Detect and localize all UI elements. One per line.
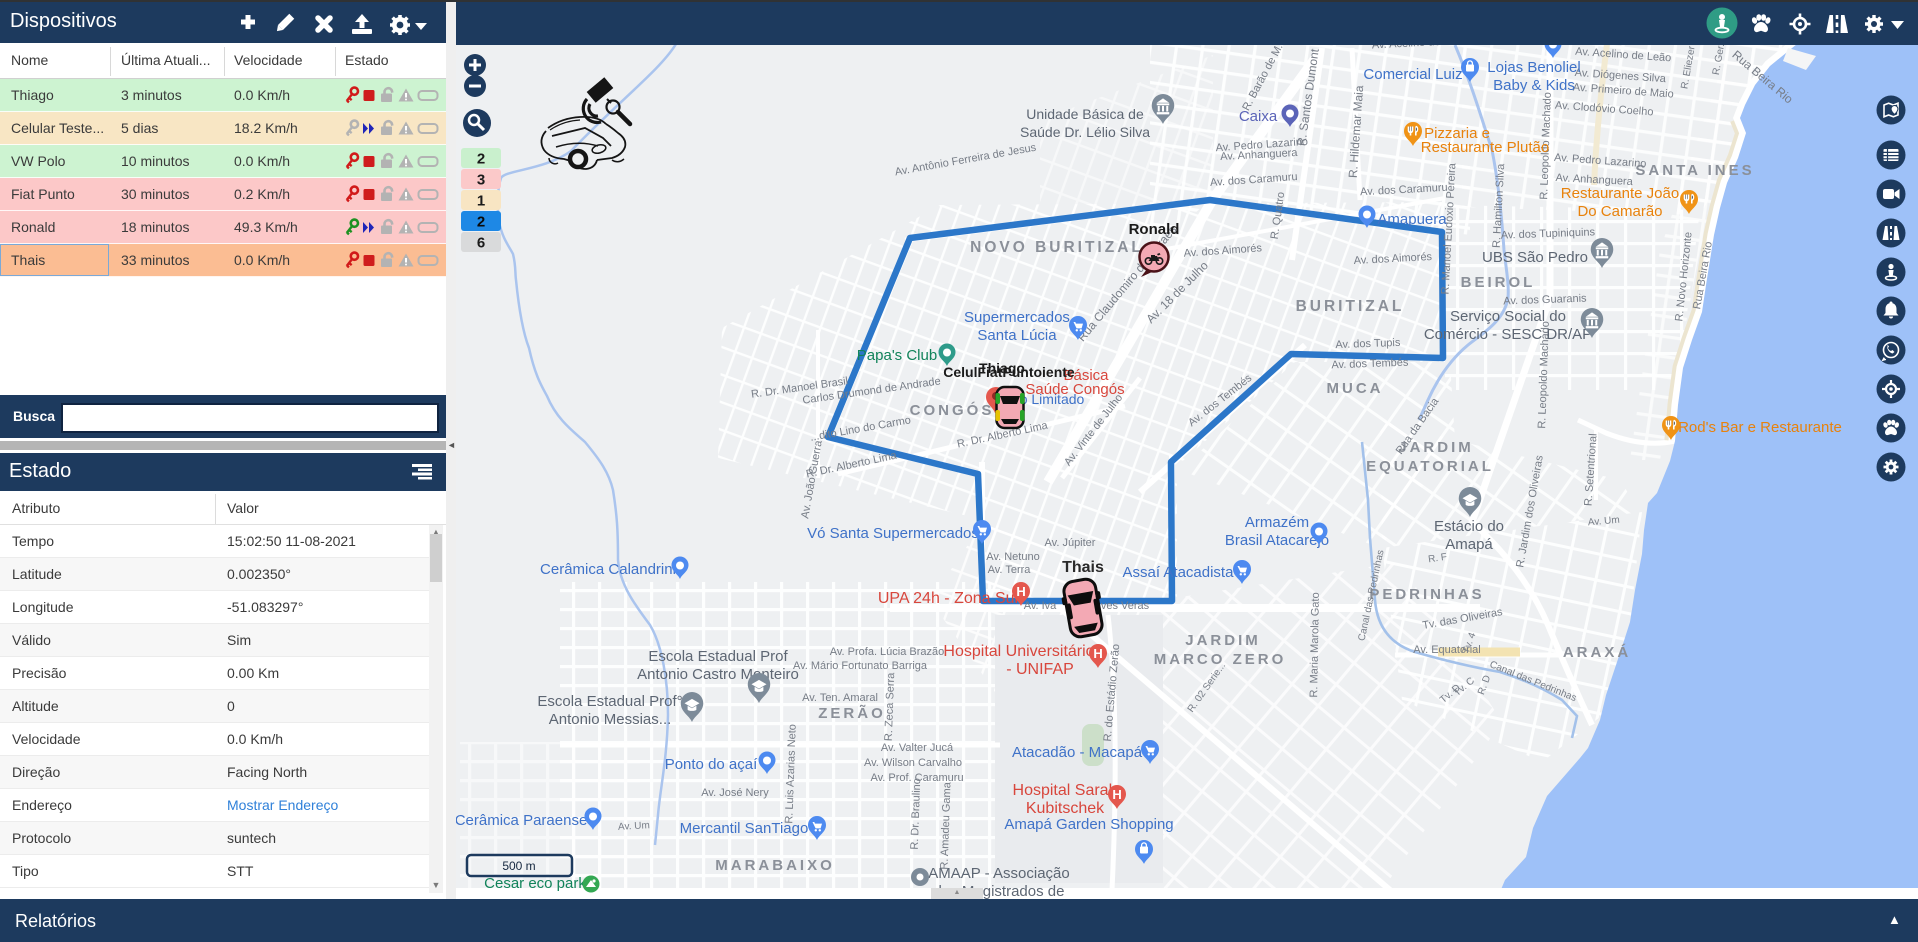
svg-text:Thais: Thais	[1062, 559, 1104, 576]
svg-text:6: 6	[477, 235, 485, 252]
svg-text:Supermercados: Supermercados	[964, 309, 1070, 326]
svg-text:Restaurante Plutão: Restaurante Plutão	[1421, 139, 1549, 156]
svg-text:Do Camarão: Do Camarão	[1577, 203, 1662, 220]
svg-text:Av. Equatorial: Av. Equatorial	[1413, 644, 1480, 656]
svg-text:Av. Júpiter: Av. Júpiter	[1045, 537, 1096, 549]
svg-text:CONGÓS: CONGÓS	[910, 401, 995, 419]
svg-text:Antonio Castro Monteiro: Antonio Castro Monteiro	[637, 666, 799, 683]
svg-text:Hospital Sarah: Hospital Sarah	[1013, 782, 1118, 799]
svg-text:Cesar eco park: Cesar eco park	[484, 875, 586, 892]
svg-text:2: 2	[477, 151, 485, 168]
svg-text:Amapuera: Amapuera	[1377, 211, 1447, 228]
svg-text:Amapá Garden Shopping: Amapá Garden Shopping	[1004, 816, 1173, 833]
svg-text:NOVO BURITIZAL: NOVO BURITIZAL	[970, 239, 1144, 256]
svg-text:Cerâmica Paraense: Cerâmica Paraense	[456, 812, 587, 829]
svg-text:Baby & Kids: Baby & Kids	[1493, 77, 1575, 94]
svg-text:Comércio - SESC DR/AP: Comércio - SESC DR/AP	[1424, 326, 1592, 343]
svg-text:UPA 24h - Zona Sul: UPA 24h - Zona Sul	[878, 590, 1018, 607]
svg-text:R. Zeca Serra: R. Zeca Serra	[883, 672, 897, 742]
svg-text:ARAXÁ: ARAXÁ	[1563, 644, 1631, 661]
svg-text:Papa's Club: Papa's Club	[857, 347, 937, 364]
svg-text:Escola Estadual Prof°: Escola Estadual Prof°	[537, 693, 682, 710]
svg-text:MUCA: MUCA	[1327, 380, 1384, 397]
svg-text:JARDIM: JARDIM	[1185, 632, 1261, 649]
svg-text:Santa Lúcia: Santa Lúcia	[977, 327, 1057, 344]
svg-text:Cerâmica Calandrini: Cerâmica Calandrini	[540, 561, 676, 578]
svg-text:Ronald: Ronald	[1129, 221, 1180, 238]
svg-text:Assaí Atacadista: Assaí Atacadista	[1123, 564, 1235, 581]
svg-text:Av. Um: Av. Um	[618, 820, 650, 833]
svg-text:Lojas Benoliel: Lojas Benoliel	[1487, 59, 1580, 76]
svg-text:SANTA INES: SANTA INES	[1635, 162, 1754, 179]
svg-text:Ponto do açaí: Ponto do açaí	[665, 756, 758, 773]
svg-text:Vó Santa Supermercados: Vó Santa Supermercados	[807, 525, 979, 542]
svg-text:Rod's Bar e Restaurante: Rod's Bar e Restaurante	[1678, 419, 1842, 436]
svg-text:Saúde Dr. Lélio Silva: Saúde Dr. Lélio Silva	[1020, 124, 1150, 140]
svg-text:Av. Iva: Av. Iva	[1024, 600, 1057, 612]
svg-text:ZERÃO: ZERÃO	[818, 704, 886, 722]
svg-text:Estácio do: Estácio do	[1434, 518, 1504, 535]
svg-text:Armazém: Armazém	[1245, 514, 1309, 531]
svg-text:CelulFiatPuntoiente: CelulFiatPuntoiente	[943, 364, 1075, 380]
svg-text:Av. Profa. Lúcia Brazão: Av. Profa. Lúcia Brazão	[830, 646, 945, 658]
svg-text:Unidade Básica de: Unidade Básica de	[1026, 106, 1144, 122]
svg-text:PEDRINHAS: PEDRINHAS	[1369, 586, 1484, 603]
svg-text:Av. dos Tupis: Av. dos Tupis	[1335, 337, 1401, 351]
svg-text:Mercantil SanTiago: Mercantil SanTiago	[680, 820, 809, 837]
svg-text:Av. Ten. Amaral: Av. Ten. Amaral	[802, 692, 878, 704]
svg-text:BURITIZAL: BURITIZAL	[1296, 298, 1405, 315]
svg-text:AMAAP - Associação: AMAAP - Associação	[928, 865, 1069, 882]
svg-text:Caixa: Caixa	[1239, 108, 1278, 125]
svg-text:Av. José Nery: Av. José Nery	[701, 787, 769, 799]
svg-text:Kubitschek: Kubitschek	[1026, 800, 1105, 817]
svg-text:1: 1	[477, 193, 485, 210]
svg-text:UBS São Pedro: UBS São Pedro	[1482, 249, 1588, 266]
svg-text:Av. Valter Jucá: Av. Valter Jucá	[881, 742, 954, 754]
svg-text:2: 2	[477, 214, 485, 231]
svg-text:Av. Netuno: Av. Netuno	[986, 551, 1039, 563]
svg-text:Atacadão - Macapá: Atacadão - Macapá	[1012, 744, 1143, 761]
svg-text:- UNIFAP: - UNIFAP	[1006, 661, 1074, 678]
svg-text:R. Maria Marola Gato: R. Maria Marola Gato	[1308, 592, 1322, 697]
svg-text:Serviço Social do: Serviço Social do	[1450, 308, 1566, 325]
svg-text:ves Veras: ves Veras	[1101, 600, 1150, 612]
svg-text:Av. Terra: Av. Terra	[988, 564, 1032, 576]
svg-text:Av. Mário Fortunato Barriga: Av. Mário Fortunato Barriga	[793, 660, 928, 672]
svg-text:Saúde Congós: Saúde Congós	[1025, 381, 1124, 398]
svg-text:Escola Estadual Prof: Escola Estadual Prof	[648, 648, 788, 665]
svg-text:Amapá: Amapá	[1445, 536, 1493, 553]
svg-text:EQUATORIAL: EQUATORIAL	[1366, 458, 1494, 475]
svg-text:Restaurante João: Restaurante João	[1561, 185, 1679, 202]
svg-text:500 m: 500 m	[502, 859, 535, 873]
svg-text:Hospital Universitário: Hospital Universitário	[943, 643, 1094, 660]
svg-text:BEIROL: BEIROL	[1461, 274, 1536, 291]
svg-text:MARABAIXO: MARABAIXO	[715, 857, 835, 874]
svg-text:3: 3	[477, 172, 485, 189]
svg-text:R. Dr. Braulino: R. Dr. Braulino	[909, 778, 923, 850]
svg-text:Comercial Luiz: Comercial Luiz	[1363, 66, 1462, 83]
svg-text:Av. Wilson Carvalho: Av. Wilson Carvalho	[864, 757, 962, 769]
svg-text:Antonio Messias...: Antonio Messias...	[549, 711, 672, 728]
